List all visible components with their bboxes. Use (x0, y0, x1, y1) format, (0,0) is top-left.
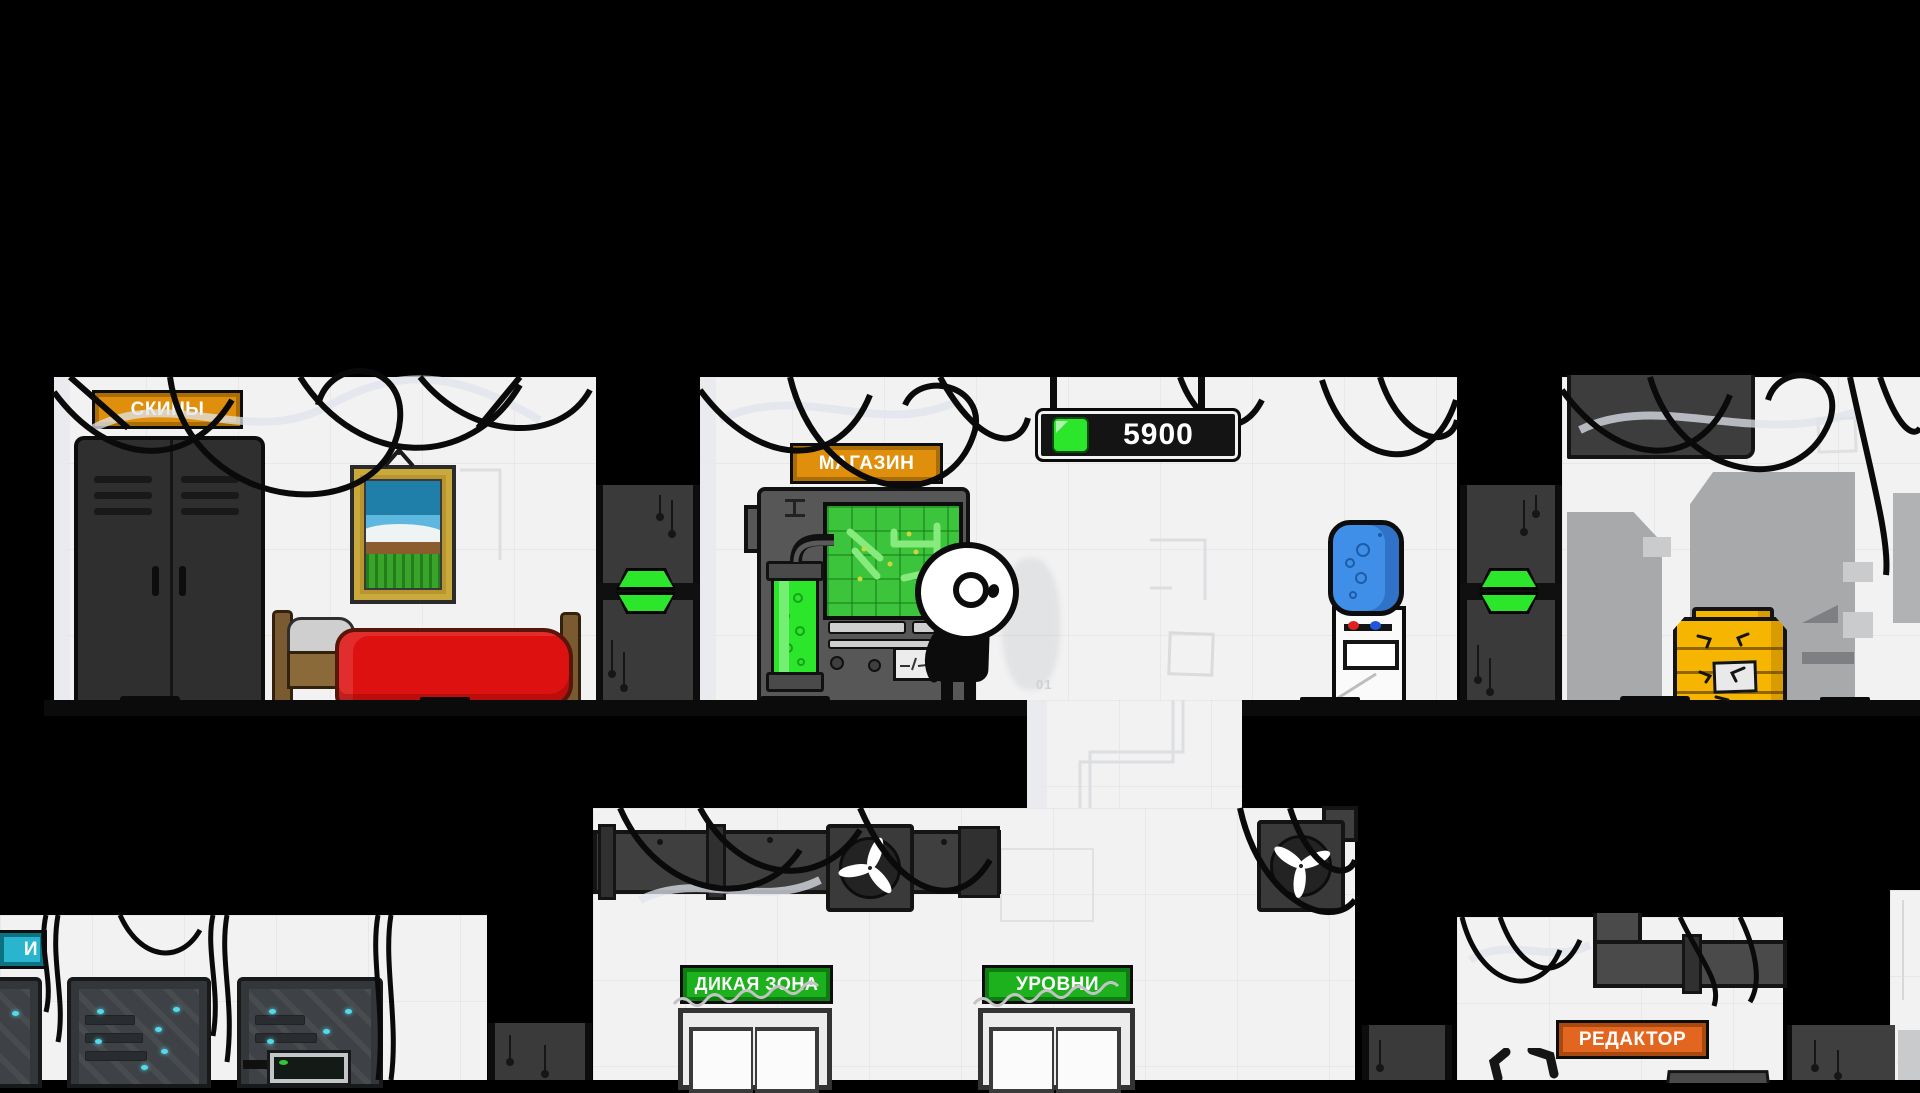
duct-flange (706, 824, 726, 900)
door-left-indicator-top[interactable] (616, 568, 676, 590)
duct-flange (598, 824, 616, 900)
corridor-panel-faint (1000, 848, 1094, 922)
floor-main-right (1242, 700, 1920, 716)
game-scene: { "currency": { "value": "5900" }, "sign… (0, 0, 1920, 1080)
painting-canvas (364, 479, 442, 590)
wall-shade (700, 377, 716, 702)
currency-hanger-rod (1198, 377, 1205, 411)
elevator-door-left[interactable] (689, 1027, 753, 1093)
sign-skills-partial: И (0, 930, 47, 969)
elevator-door-left[interactable] (989, 1027, 1054, 1093)
ceiling-fan (826, 824, 914, 912)
elevator-wild-zone[interactable] (678, 1008, 832, 1090)
sign-skins-label: СКИНЫ (131, 399, 205, 421)
server-monitor (267, 1050, 351, 1086)
machinery-inset (1843, 612, 1873, 638)
locker-vent (181, 492, 239, 499)
elevator-door-right[interactable] (1056, 1027, 1121, 1093)
wall-pillar (1787, 1025, 1895, 1080)
pipe-flange (1682, 934, 1702, 994)
locker[interactable] (74, 436, 265, 706)
air-duct (593, 830, 1001, 894)
currency-hanger-rod (1050, 377, 1057, 411)
sign-levels-label: УРОВНИ (1016, 974, 1099, 996)
sign-wild-zone-label: ДИКАЯ ЗОНА (695, 974, 819, 995)
sign-editor: РЕДАКТОР (1556, 1020, 1709, 1059)
terminal-top-bracket (785, 499, 805, 517)
machinery-inset (1643, 537, 1671, 557)
water-cooler-bottle (1328, 520, 1404, 616)
currency-value: 5900 (1089, 418, 1238, 452)
crate-label (1712, 660, 1757, 694)
wall-panel-faint (1167, 631, 1215, 677)
machinery-silhouette (1597, 627, 1647, 647)
sign-skins: СКИНЫ (92, 390, 243, 429)
sliver-line (1902, 900, 1904, 1000)
machinery-detail (1802, 652, 1854, 664)
sign-editor-label: РЕДАКТОР (1579, 1029, 1686, 1051)
painting (350, 465, 456, 604)
cooler-tray (1343, 640, 1399, 670)
server-rack (67, 977, 211, 1088)
sign-skills-label: И (24, 939, 38, 961)
locker-handle (152, 566, 159, 596)
laptop-screen (1666, 1070, 1770, 1083)
water-cooler-body (1332, 606, 1406, 710)
duct-end-cap (958, 826, 1000, 898)
tube-cap-top (766, 561, 824, 581)
locker-vent (94, 508, 152, 515)
sign-shop-label: МАГАЗИН (819, 453, 915, 475)
machinery-silhouette (1893, 493, 1920, 623)
currency-display: 5900 (1035, 408, 1241, 462)
locker-divider (170, 440, 173, 706)
sign-levels: УРОВНИ (982, 965, 1133, 1004)
ceiling-fan (1257, 820, 1345, 912)
sign-shop: МАГАЗИН (790, 443, 943, 484)
wall-shade (54, 377, 70, 702)
gem-icon (1052, 417, 1089, 453)
terminal-button[interactable] (830, 656, 844, 670)
monitor-led (279, 1060, 288, 1065)
crate (1673, 617, 1787, 711)
shaft-below-shop (1027, 700, 1242, 810)
pipe-elbow-patch (1601, 944, 1630, 958)
door-corridor-left[interactable] (488, 1023, 592, 1080)
wall-shade (1027, 700, 1047, 810)
terminal-slot (828, 621, 906, 634)
locker-handle (179, 566, 186, 596)
door-left-indicator-bottom[interactable] (616, 592, 676, 614)
ceiling-panel (1567, 375, 1755, 459)
door-corridor-right[interactable] (1362, 1025, 1452, 1080)
sliver-machine (1898, 1030, 1920, 1080)
floor-main-left (44, 700, 1027, 716)
painting-grass (366, 554, 440, 588)
locker-vent (94, 492, 152, 499)
terminal-button[interactable] (868, 659, 881, 672)
character-eye (953, 572, 989, 608)
claw-icon (1484, 1048, 1564, 1080)
cooler-tap-blue[interactable] (1370, 621, 1381, 630)
door-right-indicator-top[interactable] (1479, 568, 1539, 590)
wall-square-faint (1816, 416, 1857, 453)
locker-vent (181, 508, 239, 515)
locker-vent (181, 476, 239, 483)
bed-blanket (335, 628, 573, 708)
cooler-tap-red[interactable] (1348, 621, 1359, 630)
machinery-inset (1843, 562, 1873, 582)
door-right-indicator-bottom[interactable] (1479, 592, 1539, 614)
tube-canister (771, 573, 819, 681)
fan-icon (830, 828, 910, 908)
locker-vent (94, 476, 152, 483)
elevator-levels[interactable] (978, 1008, 1135, 1090)
painting-sky (366, 481, 440, 515)
elevator-door-right[interactable] (755, 1027, 819, 1093)
server-rack (0, 977, 42, 1088)
sign-wild-zone: ДИКАЯ ЗОНА (680, 965, 833, 1004)
wall-graffiti: 01 (1036, 677, 1052, 692)
fan-icon (1261, 824, 1341, 908)
tube-cap-bottom (766, 672, 824, 692)
